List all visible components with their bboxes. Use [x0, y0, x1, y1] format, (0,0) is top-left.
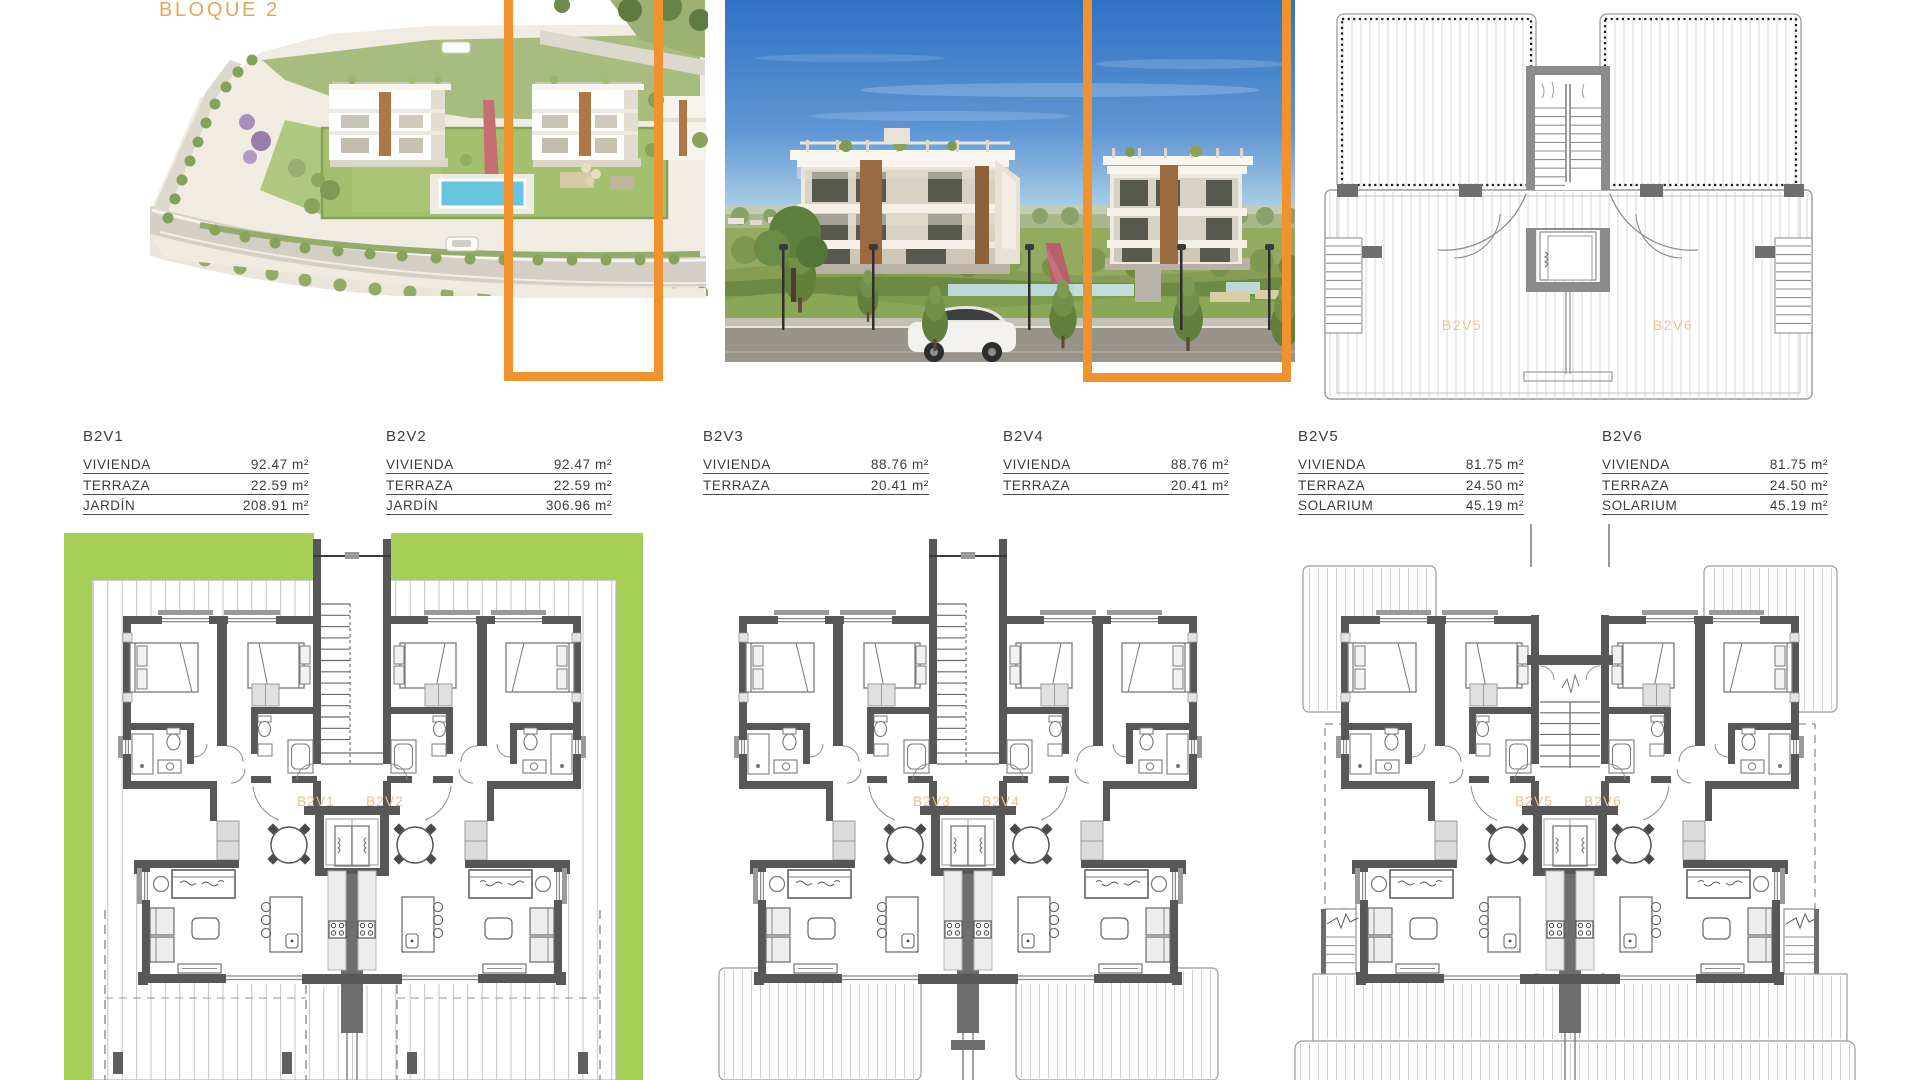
- svg-text:B2V5: B2V5: [1515, 794, 1553, 809]
- svg-text:B2V1: B2V1: [297, 794, 335, 809]
- svg-text:B2V5: B2V5: [1442, 317, 1482, 333]
- svg-text:B2V6: B2V6: [1584, 794, 1622, 809]
- svg-text:B2V4: B2V4: [982, 794, 1020, 809]
- svg-text:B2V3: B2V3: [913, 794, 951, 809]
- svg-text:B2V2: B2V2: [366, 794, 404, 809]
- svg-text:B2V6: B2V6: [1653, 317, 1693, 333]
